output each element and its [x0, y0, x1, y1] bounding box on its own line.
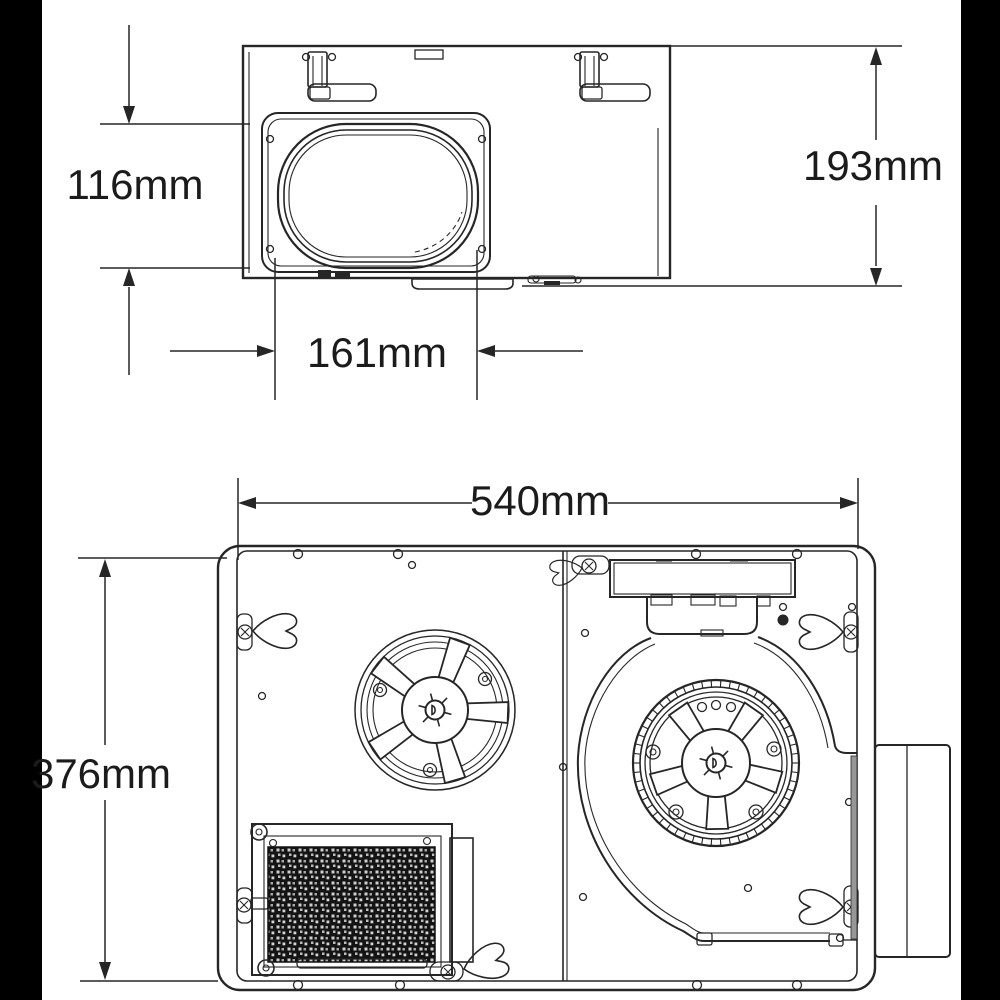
ground-screw: [778, 615, 789, 626]
latch-mark: [318, 270, 331, 277]
filter-grille: [268, 847, 435, 962]
dim-label-161mm: 161mm: [307, 329, 447, 376]
photo-edge-right: [961, 0, 1000, 1000]
ventilation-unit-dimension-drawing: 116mm 193mm 161mm: [0, 0, 1000, 1000]
dim-label-540mm: 540mm: [470, 477, 610, 524]
dim-label-376mm: 376mm: [31, 750, 171, 797]
outlet-opening: [851, 756, 857, 939]
photo-edge-left: [0, 0, 42, 1000]
latch-mark: [335, 271, 350, 277]
dim-label-116mm: 116mm: [67, 161, 204, 208]
dimension-drawing-page: 116mm 193mm 161mm: [0, 0, 1000, 1000]
dim-label-193mm: 193mm: [803, 142, 943, 189]
